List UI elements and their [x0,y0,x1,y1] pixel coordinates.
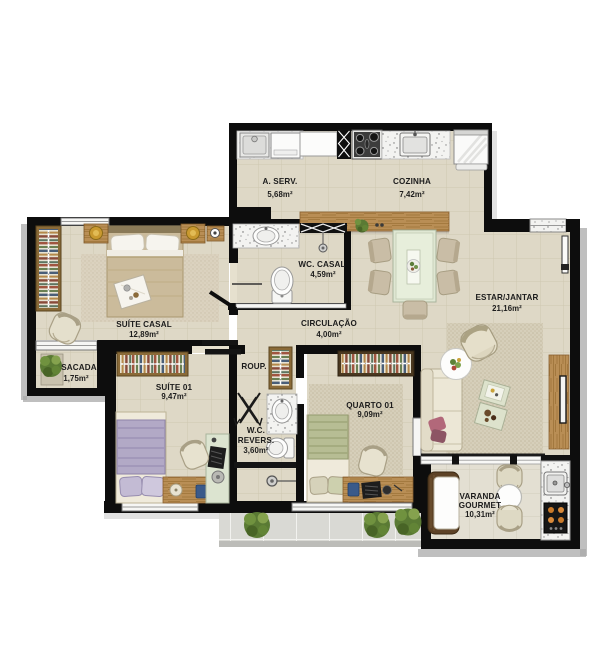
svg-text:ESTAR/JANTAR: ESTAR/JANTAR [475,293,538,302]
svg-text:COZINHA: COZINHA [393,177,431,186]
svg-text:3,60m²: 3,60m² [243,446,269,455]
svg-text:ROUP.: ROUP. [241,362,266,371]
svg-text:CIRCULAÇÃO: CIRCULAÇÃO [301,319,357,328]
svg-text:WC. CASAL: WC. CASAL [298,260,345,269]
svg-text:21,16m²: 21,16m² [492,304,522,313]
svg-text:4,59m²: 4,59m² [310,270,336,279]
svg-text:5,68m²: 5,68m² [267,190,293,199]
svg-text:W.C.: W.C. [247,426,265,435]
svg-text:4,00m²: 4,00m² [316,330,342,339]
svg-text:A. SERV.: A. SERV. [263,177,298,186]
svg-text:GOURMET: GOURMET [459,501,501,510]
svg-text:9,47m²: 9,47m² [161,392,187,401]
svg-text:SUÍTE CASAL: SUÍTE CASAL [116,320,172,329]
svg-text:12,89m²: 12,89m² [129,330,159,339]
svg-text:1,75m²: 1,75m² [63,374,89,383]
svg-text:SACADA: SACADA [61,363,97,372]
svg-text:QUARTO 01: QUARTO 01 [346,401,394,410]
svg-text:VARANDA: VARANDA [460,492,501,501]
svg-text:REVERS.: REVERS. [238,436,275,445]
svg-text:10,31m²: 10,31m² [465,510,495,519]
svg-text:9,09m²: 9,09m² [357,410,383,419]
svg-text:SUÍTE 01: SUÍTE 01 [156,383,193,392]
svg-text:7,42m²: 7,42m² [399,190,425,199]
